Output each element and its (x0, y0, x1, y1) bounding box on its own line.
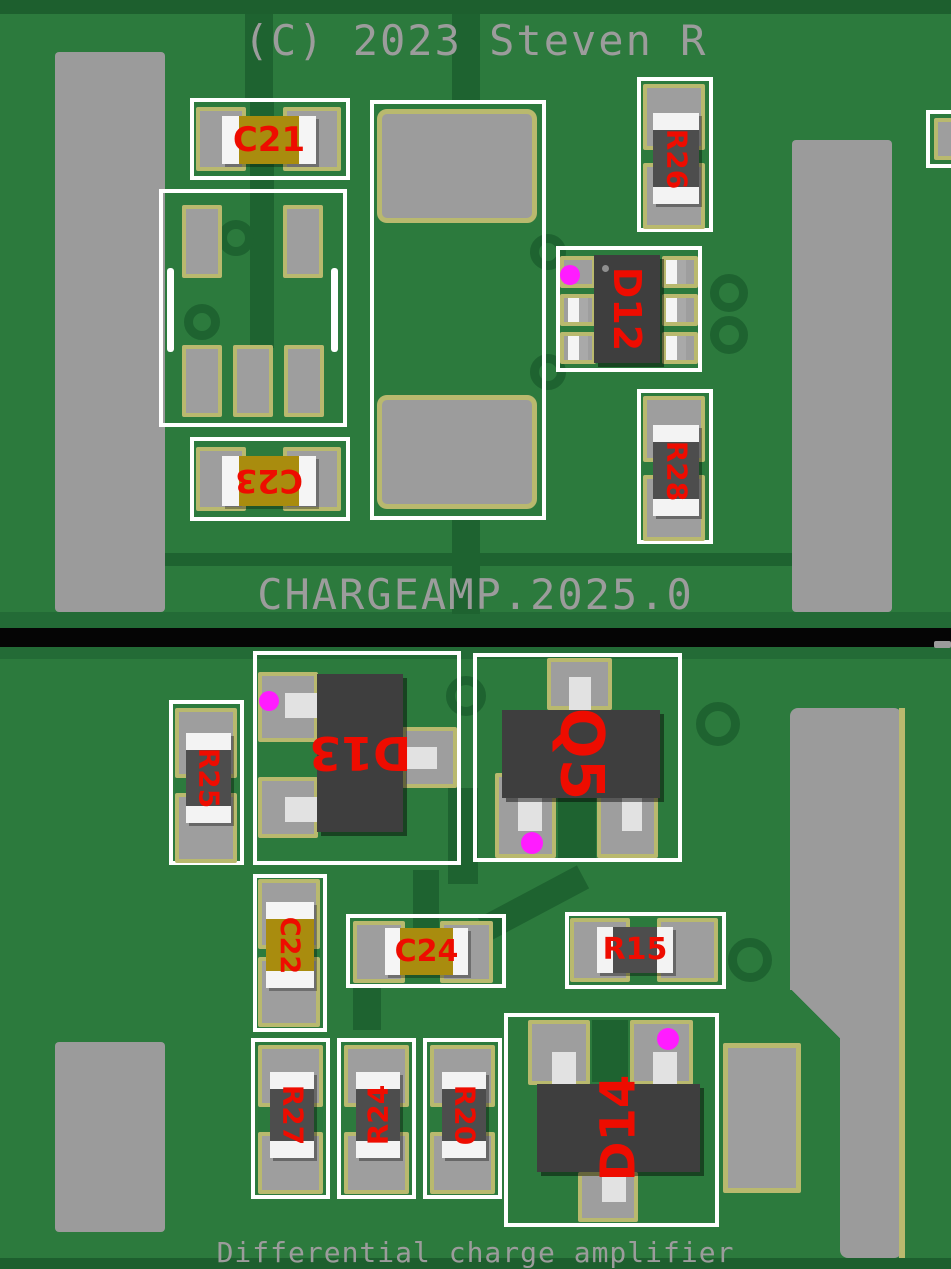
c21-label: C21 (222, 116, 316, 164)
pad-lead (518, 797, 542, 831)
c23-label: C23 (222, 456, 316, 506)
component-r20: R20 (423, 1038, 502, 1199)
component-q5: Q5 (473, 653, 682, 862)
r24-label: R24 (356, 1072, 400, 1158)
component-r28: R28 (637, 389, 713, 544)
component-r25: R25 (169, 700, 244, 865)
copper-pour-right-bottom (790, 708, 902, 990)
r15-label: R15 (597, 927, 673, 973)
via-ring (728, 938, 772, 982)
via-ring (710, 274, 748, 312)
pin1-marker (657, 1028, 679, 1050)
board-edge-strip-top (0, 0, 951, 14)
component-r24: R24 (337, 1038, 416, 1199)
r26-label: R26 (653, 113, 699, 204)
r20-label: R20 (442, 1072, 486, 1158)
copper-pour-right-top (792, 140, 892, 612)
component-c23: C23 (190, 437, 350, 521)
pad-lead (285, 797, 317, 822)
q5-label: Q5 (502, 710, 660, 798)
copper-pour-left-bottom (55, 1042, 165, 1232)
d12-label: D12 (594, 255, 660, 363)
component-r26: R26 (637, 77, 713, 232)
unpopulated-footprint-1 (159, 189, 347, 427)
pad-lead (285, 693, 317, 718)
copper-pour-chamfer (790, 988, 842, 1040)
pin1-marker (521, 832, 543, 854)
d14-label: D14 (537, 1084, 700, 1172)
board-divider (0, 628, 951, 647)
copper-tick (934, 641, 951, 648)
pin1-marker (560, 265, 580, 285)
pad-lead (666, 298, 686, 322)
c22-label: C22 (266, 902, 314, 988)
pad (934, 118, 951, 160)
pad (233, 345, 273, 417)
component-r27: R27 (251, 1038, 330, 1199)
pin1-marker (259, 691, 279, 711)
pad-lead (568, 336, 588, 360)
pad (284, 345, 324, 417)
r25-label: R25 (186, 733, 231, 823)
copper-pour-left-top (55, 52, 165, 612)
pad-lead (666, 260, 686, 284)
copper-trace (55, 553, 892, 566)
copper-pour-right-bottom-lower (840, 990, 902, 1258)
pad-lead (569, 677, 591, 710)
r28-label: R28 (653, 425, 699, 516)
pad (182, 205, 222, 278)
component-d13: D13 (253, 651, 461, 865)
copper-pour-edge-line (899, 708, 905, 1258)
component-r15: R15 (565, 912, 726, 989)
silkscreen-tick (331, 268, 338, 352)
component-d12: D12 (556, 246, 702, 372)
component-c21: C21 (190, 98, 350, 180)
silkscreen-subtitle: Differential charge amplifier (0, 1236, 951, 1269)
pad-lead (653, 1052, 677, 1085)
pad-lead (552, 1052, 576, 1085)
c24-label: C24 (385, 928, 468, 975)
silkscreen-copyright: (C) 2023 Steven R (0, 16, 951, 65)
unpopulated-footprint-2 (370, 100, 546, 520)
pad (723, 1043, 801, 1193)
pad (283, 205, 323, 278)
pad-lead (568, 298, 588, 322)
via-ring (710, 316, 748, 354)
pad (377, 395, 537, 509)
unpopulated-footprint-edge (926, 110, 951, 168)
d13-label: D13 (317, 674, 403, 832)
silkscreen-board-id: CHARGEAMP.2025.0 (0, 570, 951, 619)
pad-lead (666, 336, 686, 360)
component-d14: D14 (504, 1013, 719, 1227)
pad (182, 345, 222, 417)
pad-lead (622, 797, 642, 831)
component-c22: C22 (253, 874, 327, 1032)
pcb-render: (C) 2023 Steven R CHARGEAMP.2025.0 Diffe… (0, 0, 951, 1269)
copper-trace (353, 988, 381, 1030)
pad (377, 109, 537, 223)
component-c24: C24 (346, 914, 506, 988)
r27-label: R27 (270, 1072, 314, 1158)
silkscreen-tick (167, 268, 174, 352)
via-ring (696, 702, 740, 746)
